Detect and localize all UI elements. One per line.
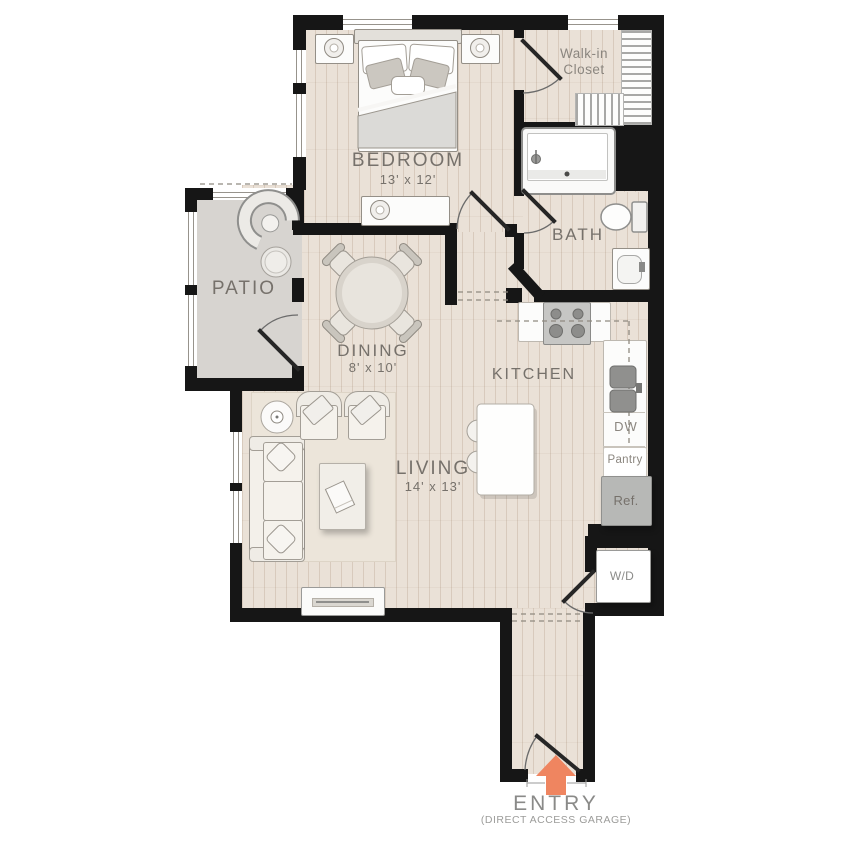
living-dims: 14' x 13' [405, 479, 462, 494]
patio-chair [235, 187, 296, 245]
bedroom-dims: 13' x 12' [380, 172, 437, 187]
patio-side-table [261, 247, 291, 277]
bath-door-panel [524, 191, 554, 221]
patio-door-arc [260, 315, 298, 331]
bedroom-door-arc [457, 193, 472, 229]
patio-door-panel [260, 331, 298, 369]
dining-set [321, 242, 423, 344]
pantry-label: Pantry [607, 454, 642, 466]
wd-door-arc [564, 601, 593, 613]
dresser-lamp [371, 201, 390, 220]
kitchen-label: KITCHEN [492, 366, 576, 384]
wall-bath-angled [512, 265, 541, 297]
washer-dryer-label: W/D [610, 569, 634, 583]
closet-door-arc [523, 78, 560, 93]
floor-lamp [261, 401, 293, 433]
bedroom-label: BEDROOM [352, 150, 464, 172]
tub-drain-icon [565, 172, 570, 177]
patio-label: PATIO [212, 278, 276, 300]
floor-plan: BEDROOM 13' x 12' Walk-in Closet BATH PA… [0, 0, 844, 844]
entry-door-arc [525, 736, 537, 770]
refrigerator-label: Ref. [613, 493, 638, 508]
closet-label: Walk-in Closet [545, 46, 623, 77]
bedroom-door-panel [472, 193, 508, 229]
dining-table-top [342, 263, 402, 323]
coffee-table-book [325, 481, 354, 513]
entry-label: ENTRY [513, 792, 599, 816]
bath-label: BATH [552, 225, 604, 245]
bath-door-arc [524, 221, 554, 233]
living-hall-opening-dash [512, 614, 583, 621]
dashed-lines [200, 184, 629, 621]
kitchen-faucet [636, 383, 642, 393]
kitchen-sink [610, 366, 642, 412]
nightstand-lamp-left [325, 39, 344, 58]
dining-label: DINING [337, 341, 409, 361]
wd-door-panel [564, 572, 593, 601]
living-label: LIVING [396, 458, 470, 480]
dishwasher-label: DW [614, 419, 638, 434]
hall-kitchen-opening-dash [458, 292, 512, 300]
stove-burners [550, 309, 585, 338]
dining-dims: 8' x 10' [349, 360, 397, 375]
toilet [601, 202, 647, 232]
kitchen-island [467, 404, 537, 499]
armchair-blankets [302, 395, 381, 426]
shower-head [532, 150, 541, 164]
nightstand-lamp-right [471, 39, 490, 58]
entry-sublabel: (DIRECT ACCESS GARAGE) [481, 814, 631, 826]
bed-blanket [358, 86, 456, 148]
plan-vector-overlay [0, 0, 844, 844]
sofa-throw-pillows [265, 441, 296, 554]
bath-faucet [639, 262, 645, 272]
